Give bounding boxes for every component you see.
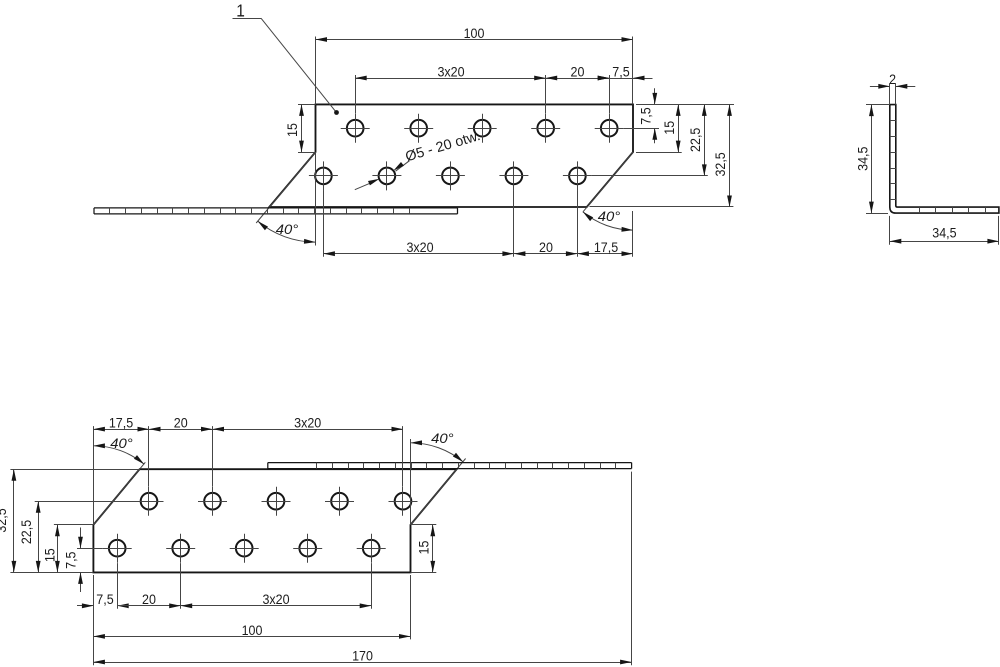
- svg-text:20: 20: [174, 416, 188, 432]
- svg-text:34,5: 34,5: [932, 225, 956, 241]
- svg-text:3x20: 3x20: [262, 592, 289, 608]
- svg-text:170: 170: [352, 648, 373, 664]
- svg-text:17,5: 17,5: [109, 416, 133, 432]
- svg-text:20: 20: [571, 64, 585, 80]
- svg-text:32,5: 32,5: [713, 152, 729, 176]
- svg-text:40°: 40°: [110, 436, 133, 452]
- svg-text:7,5: 7,5: [612, 64, 629, 80]
- svg-text:7,5: 7,5: [96, 592, 113, 608]
- svg-text:100: 100: [242, 623, 263, 639]
- svg-text:7,5: 7,5: [638, 107, 654, 124]
- svg-text:15: 15: [285, 123, 301, 137]
- svg-text:20: 20: [142, 592, 156, 608]
- svg-text:3x20: 3x20: [437, 64, 464, 80]
- svg-text:7,5: 7,5: [64, 551, 80, 568]
- svg-text:40°: 40°: [598, 209, 621, 225]
- svg-text:2: 2: [889, 72, 896, 88]
- svg-text:15: 15: [416, 540, 432, 554]
- svg-text:15: 15: [662, 121, 678, 135]
- svg-text:1: 1: [236, 1, 245, 21]
- svg-text:22,5: 22,5: [688, 128, 704, 152]
- svg-text:15: 15: [43, 548, 59, 562]
- svg-text:34,5: 34,5: [855, 146, 871, 170]
- svg-text:20: 20: [539, 240, 553, 256]
- svg-text:22,5: 22,5: [19, 520, 35, 544]
- svg-text:32,5: 32,5: [0, 508, 10, 532]
- svg-text:3x20: 3x20: [294, 416, 321, 432]
- svg-text:40°: 40°: [431, 431, 454, 447]
- svg-text:17,5: 17,5: [594, 240, 618, 256]
- svg-text:100: 100: [464, 26, 485, 42]
- svg-text:40°: 40°: [276, 222, 299, 238]
- svg-text:3x20: 3x20: [406, 240, 433, 256]
